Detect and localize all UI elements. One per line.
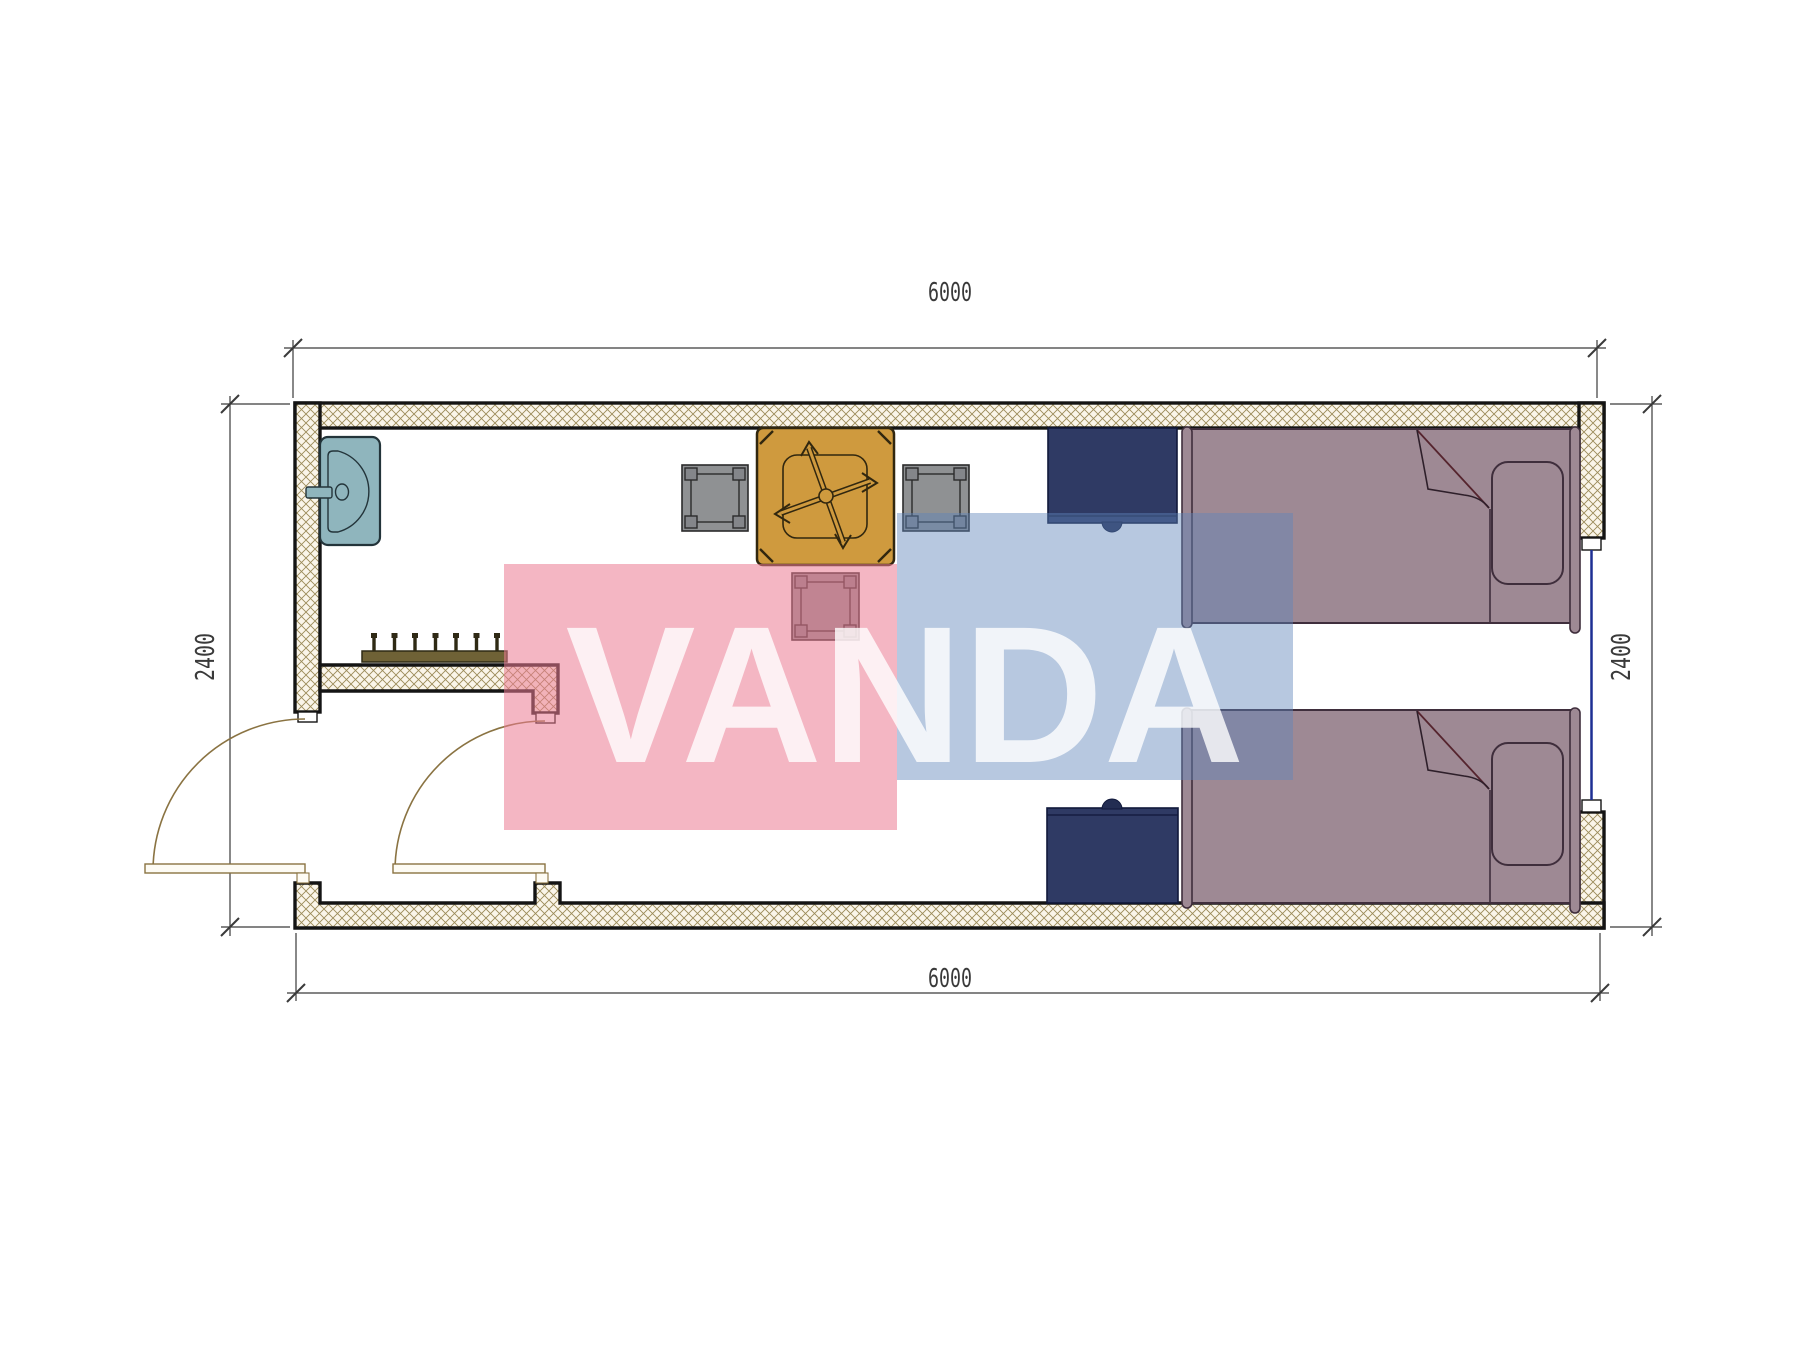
door-leaf (145, 864, 305, 873)
faucet-icon (306, 487, 332, 498)
dim-label-top: 6000 (928, 278, 972, 308)
door-leaf (393, 864, 545, 873)
door-hinge-block (536, 873, 548, 883)
nightstand-body (1047, 808, 1178, 903)
right-wall-upper (1579, 403, 1604, 538)
headboard (1570, 427, 1580, 633)
chair-left (682, 465, 748, 531)
top-wall (295, 403, 1604, 428)
x-base-hub (819, 489, 833, 503)
window-jamb-cap (1582, 538, 1601, 550)
coat-rack-bar (362, 651, 507, 662)
dim-label-right: 2400 (1607, 633, 1637, 681)
dim-label-left: 2400 (191, 633, 221, 681)
nightstand-body (1048, 428, 1177, 523)
window-jamb-cap (1582, 800, 1601, 812)
wall-cap (298, 712, 317, 722)
watermark-text: VANDA (566, 586, 1245, 804)
dining-table (757, 428, 894, 565)
faucet-knob-icon (336, 484, 349, 500)
nightstand-bottom (1047, 799, 1178, 903)
floor-plan-drawing: 6000 6000 2400 2400 (0, 0, 1800, 1350)
left-wall (295, 403, 320, 712)
door-hinge-block (297, 873, 309, 883)
floor-plan-canvas: 6000 6000 2400 2400 (0, 0, 1800, 1350)
headboard (1570, 708, 1580, 913)
dim-label-bottom: 6000 (928, 964, 972, 994)
